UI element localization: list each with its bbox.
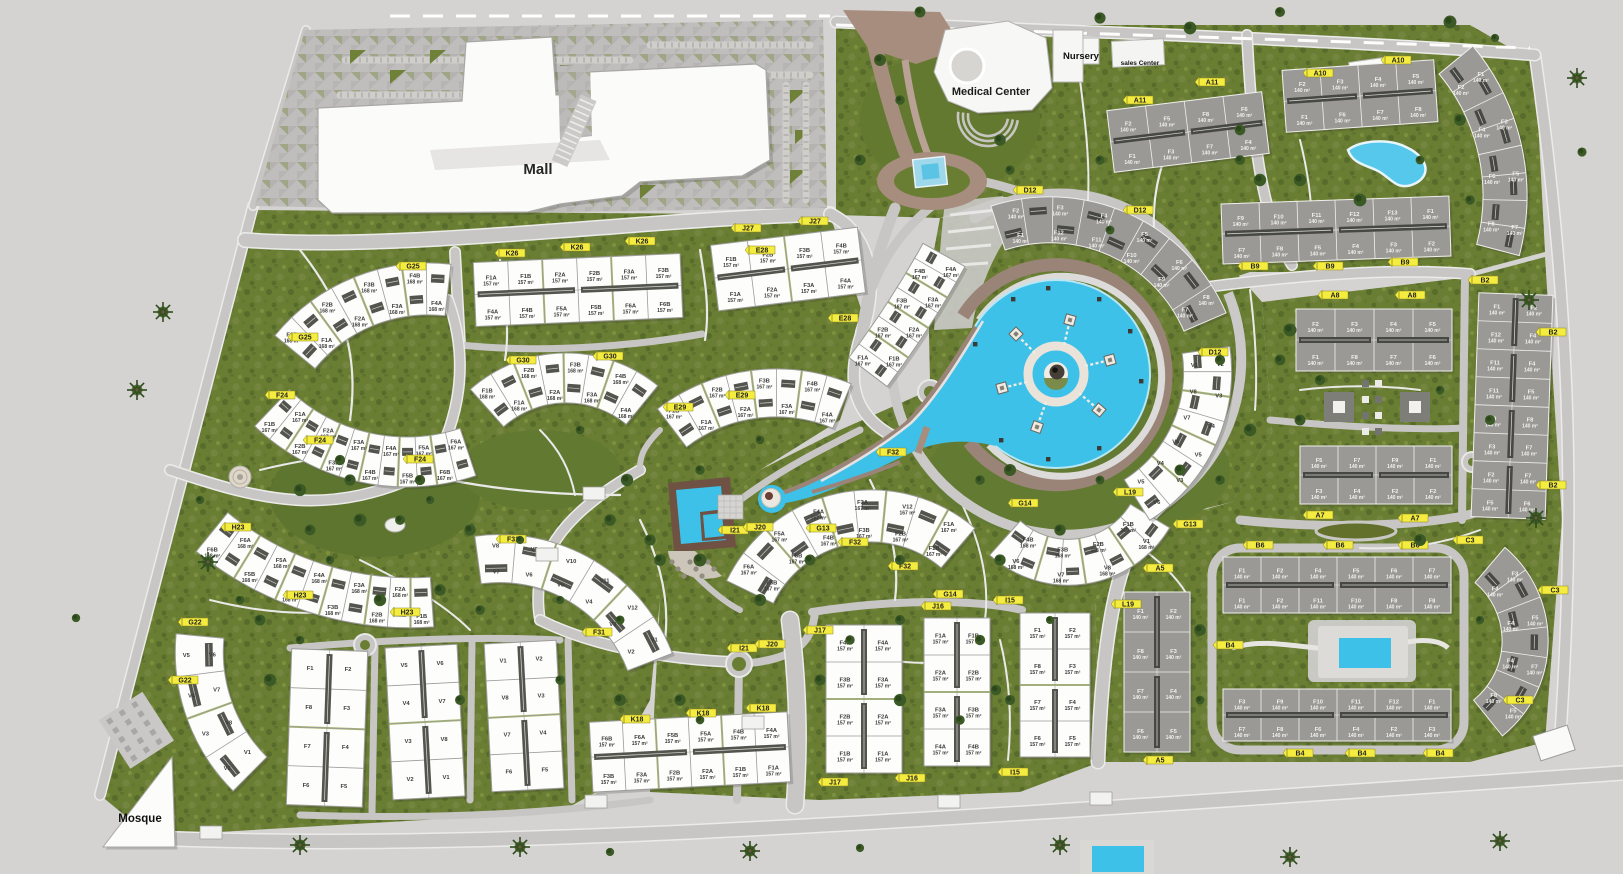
svg-text:B4: B4 [1226,643,1235,650]
svg-text:F24: F24 [314,438,326,445]
svg-text:140 m²: 140 m² [1488,338,1504,344]
svg-text:140 m²: 140 m² [1370,83,1386,89]
svg-text:157 m²: 157 m² [485,316,501,322]
svg-text:168 m²: 168 m² [429,307,445,313]
svg-text:167 m²: 167 m² [789,560,805,566]
svg-text:B2: B2 [1549,483,1558,490]
svg-text:157 m²: 157 m² [801,289,817,295]
svg-text:V7: V7 [1183,415,1190,421]
svg-text:F6: F6 [506,769,514,775]
svg-text:140 m²: 140 m² [1166,735,1182,741]
svg-text:157 m²: 157 m² [698,737,714,743]
svg-text:V3: V3 [202,732,210,738]
svg-text:140 m²: 140 m² [1423,215,1439,221]
svg-text:G14: G14 [943,592,956,599]
svg-text:I21: I21 [730,528,740,535]
svg-text:E28: E28 [839,316,852,323]
svg-text:157 m²: 157 m² [833,250,849,256]
svg-text:V4: V4 [188,694,196,700]
svg-text:B9: B9 [1401,260,1410,267]
svg-text:140 m²: 140 m² [1124,259,1140,265]
svg-text:V4: V4 [1157,461,1165,467]
svg-text:140 m²: 140 m² [1163,156,1179,162]
svg-text:K18: K18 [757,706,770,713]
svg-text:V2: V2 [224,766,231,772]
svg-text:B9: B9 [1326,264,1335,271]
svg-text:V1: V1 [500,659,508,665]
svg-text:F5: F5 [542,768,550,774]
svg-text:157 m²: 157 m² [837,721,853,727]
svg-text:168 m²: 168 m² [479,395,495,401]
svg-text:B2: B2 [1481,278,1490,285]
svg-text:168 m²: 168 m² [273,564,289,570]
svg-text:140 m²: 140 m² [1503,627,1519,633]
svg-text:157 m²: 157 m² [554,313,570,319]
svg-text:140 m²: 140 m² [1310,574,1326,580]
svg-text:140 m²: 140 m² [1240,146,1256,152]
svg-text:140 m²: 140 m² [1425,495,1441,501]
svg-text:157 m²: 157 m² [623,310,639,316]
svg-text:K26: K26 [636,239,649,246]
svg-text:140 m²: 140 m² [1089,243,1105,249]
svg-text:B4: B4 [1358,751,1367,758]
svg-text:A11: A11 [1206,80,1219,87]
svg-text:H23: H23 [401,610,414,617]
svg-text:157 m²: 157 m² [837,758,853,764]
svg-text:157 m²: 157 m² [700,775,716,781]
svg-text:140 m²: 140 m² [1310,251,1326,257]
svg-text:C3: C3 [1516,698,1525,705]
svg-text:168 m²: 168 m² [1099,571,1115,577]
svg-text:140 m²: 140 m² [1386,705,1402,711]
svg-text:140 m²: 140 m² [1408,80,1424,86]
svg-text:140 m²: 140 m² [1520,480,1536,486]
svg-text:157 m²: 157 m² [601,780,617,786]
svg-text:140 m²: 140 m² [1486,699,1502,705]
svg-text:157 m²: 157 m² [933,714,949,720]
svg-text:168 m²: 168 m² [1138,545,1154,551]
svg-text:140 m²: 140 m² [1524,368,1540,374]
svg-text:J20: J20 [754,525,766,532]
svg-text:V4: V4 [585,599,593,605]
svg-text:157 m²: 157 m² [933,640,949,646]
svg-text:V3: V3 [537,694,545,700]
svg-text:I15: I15 [1010,770,1020,777]
svg-text:G25: G25 [406,264,419,271]
svg-text:A10: A10 [1314,71,1327,78]
svg-text:140 m²: 140 m² [1386,733,1402,739]
svg-text:F24: F24 [276,393,288,400]
svg-text:C3: C3 [1466,538,1475,545]
svg-text:168 m²: 168 m² [389,310,405,316]
svg-text:167 m²: 167 m² [292,418,308,424]
svg-text:140 m²: 140 m² [1525,340,1541,346]
svg-text:140 m²: 140 m² [1013,239,1029,245]
svg-text:I21: I21 [739,646,749,653]
svg-text:140 m²: 140 m² [1348,250,1364,256]
svg-text:140 m²: 140 m² [1308,328,1324,334]
svg-text:140 m²: 140 m² [1154,283,1170,289]
svg-text:140 m²: 140 m² [1425,361,1441,367]
svg-text:140 m²: 140 m² [1410,113,1426,119]
svg-text:140 m²: 140 m² [1166,615,1182,621]
svg-text:168 m²: 168 m² [1120,528,1136,534]
svg-text:157 m²: 157 m² [933,677,949,683]
svg-text:140 m²: 140 m² [1159,123,1175,129]
svg-text:167 m²: 167 m² [912,275,928,281]
svg-text:157 m²: 157 m² [634,778,650,784]
svg-text:168 m²: 168 m² [414,620,430,626]
svg-text:V5: V5 [1195,453,1203,459]
svg-text:140 m²: 140 m² [1483,478,1499,484]
svg-text:V8: V8 [1190,390,1198,396]
svg-text:140 m²: 140 m² [1522,424,1538,430]
svg-text:V1: V1 [1191,363,1199,369]
svg-text:168 m²: 168 m² [613,380,629,386]
svg-text:140 m²: 140 m² [1347,328,1363,334]
svg-text:167 m²: 167 m² [925,304,941,310]
svg-text:140 m²: 140 m² [1484,450,1500,456]
svg-text:157 m²: 157 m² [1030,670,1046,676]
svg-text:167 m²: 167 m² [875,333,891,339]
svg-text:J17: J17 [829,780,841,787]
svg-text:E29: E29 [736,393,749,400]
svg-text:157 m²: 157 m² [837,647,853,653]
svg-text:140 m²: 140 m² [1198,118,1214,124]
svg-text:V12: V12 [627,605,637,611]
svg-text:A7: A7 [1411,516,1420,523]
svg-text:L19: L19 [1124,490,1136,497]
svg-text:sales Center: sales Center [1121,60,1160,67]
svg-text:167 m²: 167 m² [326,466,342,472]
svg-text:D12: D12 [1024,188,1037,195]
svg-text:V7: V7 [438,699,445,705]
svg-text:168 m²: 168 m² [319,344,335,350]
svg-text:140 m²: 140 m² [1348,574,1364,580]
svg-text:A8: A8 [1408,293,1417,300]
svg-text:140 m²: 140 m² [1294,88,1310,94]
svg-text:168 m²: 168 m² [1090,548,1106,554]
svg-text:167 m²: 167 m² [771,538,787,544]
svg-text:167 m²: 167 m² [437,476,453,482]
svg-text:140 m²: 140 m² [1347,361,1363,367]
svg-text:140 m²: 140 m² [1349,464,1365,470]
svg-text:167 m²: 167 m² [821,542,837,548]
svg-text:V7: V7 [493,570,500,576]
svg-text:140 m²: 140 m² [1387,495,1403,501]
svg-text:167 m²: 167 m² [756,384,772,390]
svg-text:157 m²: 157 m² [1065,706,1081,712]
svg-text:B2: B2 [1549,330,1558,337]
svg-text:140 m²: 140 m² [1310,733,1326,739]
svg-text:168 m²: 168 m² [1055,554,1071,560]
svg-text:168 m²: 168 m² [521,374,537,380]
svg-text:167 m²: 167 m² [383,452,399,458]
svg-text:J20: J20 [766,642,778,649]
svg-text:B4: B4 [1296,751,1305,758]
svg-text:157 m²: 157 m² [519,314,535,320]
svg-text:168 m²: 168 m² [311,579,327,585]
svg-text:167 m²: 167 m² [855,361,871,367]
svg-text:168 m²: 168 m² [319,309,335,315]
svg-text:Nursery: Nursery [1063,51,1100,62]
svg-text:140 m²: 140 m² [1424,574,1440,580]
svg-text:140 m²: 140 m² [1453,91,1469,97]
svg-text:157 m²: 157 m² [760,259,776,265]
svg-text:140 m²: 140 m² [1202,151,1218,157]
svg-text:168 m²: 168 m² [618,414,634,420]
svg-text:157 m²: 157 m² [483,281,499,287]
svg-text:140 m²: 140 m² [1349,495,1365,501]
svg-text:167 m²: 167 m² [362,476,378,482]
svg-text:157 m²: 157 m² [875,721,891,727]
svg-text:140 m²: 140 m² [1483,228,1499,234]
svg-text:157 m²: 157 m² [875,684,891,690]
svg-text:V1: V1 [651,638,659,644]
svg-text:V5: V5 [557,583,565,589]
svg-text:140 m²: 140 m² [1386,249,1402,255]
svg-text:157 m²: 157 m² [797,254,813,260]
svg-text:168 m²: 168 m² [242,578,258,584]
svg-text:B9: B9 [1251,264,1260,271]
svg-text:167 m²: 167 m² [941,528,957,534]
svg-text:140 m²: 140 m² [1166,695,1182,701]
svg-text:140 m²: 140 m² [1386,604,1402,610]
svg-text:140 m²: 140 m² [1272,705,1288,711]
svg-text:140 m²: 140 m² [1272,253,1288,259]
svg-text:140 m²: 140 m² [1508,178,1524,184]
svg-text:F32: F32 [849,540,861,547]
svg-text:V6: V6 [1172,440,1180,446]
svg-text:G30: G30 [603,354,616,361]
svg-text:140 m²: 140 m² [1234,733,1250,739]
svg-text:140 m²: 140 m² [1311,464,1327,470]
svg-text:J16: J16 [906,776,918,783]
svg-text:V4: V4 [1208,424,1216,430]
svg-text:168 m²: 168 m² [237,544,253,550]
svg-text:V8: V8 [492,544,500,550]
svg-text:168 m²: 168 m² [407,279,423,285]
svg-text:157 m²: 157 m² [1065,634,1081,640]
svg-text:A5: A5 [1156,758,1165,765]
svg-text:167 m²: 167 m² [764,586,780,592]
svg-text:V6: V6 [526,572,534,578]
svg-text:168 m²: 168 m² [361,289,377,295]
svg-text:168 m²: 168 m² [392,593,408,599]
svg-text:140 m²: 140 m² [1487,592,1503,598]
svg-text:G14: G14 [1018,501,1031,508]
svg-text:V3: V3 [1215,393,1223,399]
svg-text:140 m²: 140 m² [1234,604,1250,610]
svg-text:140 m²: 140 m² [1348,705,1364,711]
svg-text:F2: F2 [345,667,352,673]
svg-text:140 m²: 140 m² [1527,622,1543,628]
svg-text:F4: F4 [342,745,350,751]
svg-text:140 m²: 140 m² [1489,310,1505,316]
svg-text:157 m²: 157 m² [838,285,854,291]
svg-text:140 m²: 140 m² [1523,396,1539,402]
svg-text:157 m²: 157 m² [518,280,534,286]
svg-text:167 m²: 167 m² [804,388,820,394]
svg-text:157 m²: 157 m² [1065,670,1081,676]
svg-text:140 m²: 140 m² [1271,221,1287,227]
svg-text:V11: V11 [600,579,611,585]
svg-text:140 m²: 140 m² [1527,671,1543,677]
svg-text:157 m²: 157 m² [665,739,681,745]
svg-text:140 m²: 140 m² [1505,714,1521,720]
svg-text:V4: V4 [402,701,410,707]
svg-text:157 m²: 157 m² [657,308,673,314]
svg-text:167 m²: 167 m² [779,410,795,416]
svg-text:K18: K18 [631,717,644,724]
svg-text:J27: J27 [809,219,821,226]
svg-text:140 m²: 140 m² [1502,665,1518,671]
svg-text:G22: G22 [178,678,191,685]
svg-text:140 m²: 140 m² [1234,574,1250,580]
svg-text:140 m²: 140 m² [1177,314,1193,320]
svg-text:140 m²: 140 m² [1052,212,1068,218]
svg-text:140 m²: 140 m² [1137,238,1153,244]
svg-text:157 m²: 157 m² [764,734,780,740]
svg-text:G22: G22 [188,620,201,627]
svg-text:J27: J27 [742,226,754,233]
svg-text:V4: V4 [539,731,547,737]
svg-text:Medical Center: Medical Center [952,86,1031,98]
svg-text:140 m²: 140 m² [1166,655,1182,661]
svg-text:140 m²: 140 m² [1272,733,1288,739]
svg-text:157 m²: 157 m² [588,311,604,317]
svg-text:V7: V7 [503,732,510,738]
svg-text:V10: V10 [566,559,576,565]
svg-text:140 m²: 140 m² [1348,604,1364,610]
svg-text:167 m²: 167 m² [926,552,942,558]
svg-text:157 m²: 157 m² [632,741,648,747]
svg-text:A10: A10 [1392,58,1405,65]
svg-text:167 m²: 167 m² [709,394,725,400]
svg-text:167 m²: 167 m² [698,426,714,432]
svg-text:V2: V2 [628,650,635,656]
svg-text:140 m²: 140 m² [1519,508,1535,514]
svg-text:F7: F7 [304,744,311,750]
svg-text:168 m²: 168 m² [1053,578,1069,584]
svg-text:140 m²: 140 m² [1424,604,1440,610]
svg-text:140 m²: 140 m² [1133,695,1149,701]
svg-text:A11: A11 [1134,98,1147,105]
svg-text:V3: V3 [404,739,412,745]
svg-text:A8: A8 [1331,293,1340,300]
svg-text:167 m²: 167 m² [262,428,278,434]
svg-text:F6: F6 [303,783,311,789]
svg-text:140 m²: 140 m² [1297,121,1313,127]
svg-text:167 m²: 167 m² [448,446,464,452]
svg-text:140 m²: 140 m² [1334,119,1350,125]
svg-text:140 m²: 140 m² [1310,705,1326,711]
svg-text:140 m²: 140 m² [1308,361,1324,367]
svg-text:168 m²: 168 m² [325,611,341,617]
svg-text:G13: G13 [1183,522,1196,529]
svg-text:C3: C3 [1551,588,1560,595]
svg-text:140 m²: 140 m² [1347,218,1363,224]
svg-text:140 m²: 140 m² [1487,366,1503,372]
svg-text:157 m²: 157 m² [667,777,683,783]
svg-text:140 m²: 140 m² [1424,733,1440,739]
svg-text:V2: V2 [406,777,413,783]
svg-text:167 m²: 167 m² [738,413,754,419]
svg-text:140 m²: 140 m² [1425,464,1441,470]
svg-text:A7: A7 [1316,513,1325,520]
svg-text:167 m²: 167 m² [855,506,871,512]
svg-text:140 m²: 140 m² [1272,574,1288,580]
svg-text:167 m²: 167 m² [906,333,922,339]
svg-text:140 m²: 140 m² [1133,615,1149,621]
svg-text:157 m²: 157 m² [875,647,891,653]
svg-text:167 m²: 167 m² [943,273,959,279]
svg-text:168 m²: 168 m² [352,323,368,329]
svg-text:V8: V8 [225,720,233,726]
svg-text:140 m²: 140 m² [1198,301,1214,307]
svg-text:157 m²: 157 m² [766,771,782,777]
svg-text:140 m²: 140 m² [1424,705,1440,711]
svg-text:I15: I15 [1005,598,1015,605]
svg-text:168 m²: 168 m² [1020,543,1036,549]
svg-text:V5: V5 [183,653,191,659]
svg-text:G13: G13 [816,526,829,533]
svg-text:A5: A5 [1156,566,1165,573]
svg-text:167 m²: 167 m² [666,415,682,421]
svg-text:140 m²: 140 m² [1332,85,1348,91]
svg-text:V5: V5 [400,663,408,669]
svg-text:168 m²: 168 m² [369,619,385,625]
svg-text:V8: V8 [502,696,510,702]
svg-text:157 m²: 157 m² [1030,742,1046,748]
svg-text:157 m²: 157 m² [764,294,780,300]
svg-text:167 m²: 167 m² [886,362,902,368]
svg-text:V7: V7 [213,687,220,693]
svg-text:157 m²: 157 m² [1030,706,1046,712]
svg-text:167 m²: 167 m² [819,418,835,424]
svg-text:167 m²: 167 m² [292,450,308,456]
svg-text:140 m²: 140 m² [1473,78,1489,84]
svg-text:J16: J16 [932,604,944,611]
svg-text:140 m²: 140 m² [1484,180,1500,186]
svg-text:G30: G30 [516,358,529,365]
svg-text:140 m²: 140 m² [1386,361,1402,367]
svg-text:E28: E28 [756,248,769,255]
svg-text:140 m²: 140 m² [1171,266,1187,272]
svg-text:168 m²: 168 m² [1008,565,1024,571]
svg-text:140 m²: 140 m² [1008,215,1024,221]
svg-text:J17: J17 [814,628,826,635]
svg-text:140 m²: 140 m² [1387,464,1403,470]
svg-text:B6: B6 [1336,543,1345,550]
svg-text:157 m²: 157 m² [731,736,747,742]
svg-text:V2: V2 [536,657,543,663]
svg-text:157 m²: 157 m² [599,743,615,749]
svg-text:157 m²: 157 m² [933,751,949,757]
svg-text:157 m²: 157 m² [966,751,982,757]
svg-text:140 m²: 140 m² [1234,254,1250,260]
svg-text:F32: F32 [887,450,899,457]
svg-text:F5: F5 [341,784,349,790]
svg-text:140 m²: 140 m² [1474,134,1490,140]
svg-text:167 m²: 167 m² [811,516,827,522]
svg-text:140 m²: 140 m² [1096,220,1112,226]
svg-text:168 m²: 168 m² [547,396,563,402]
svg-text:V6: V6 [209,653,217,659]
svg-text:V3: V3 [609,622,617,628]
svg-text:140 m²: 140 m² [1233,222,1249,228]
svg-text:H23: H23 [294,593,307,600]
